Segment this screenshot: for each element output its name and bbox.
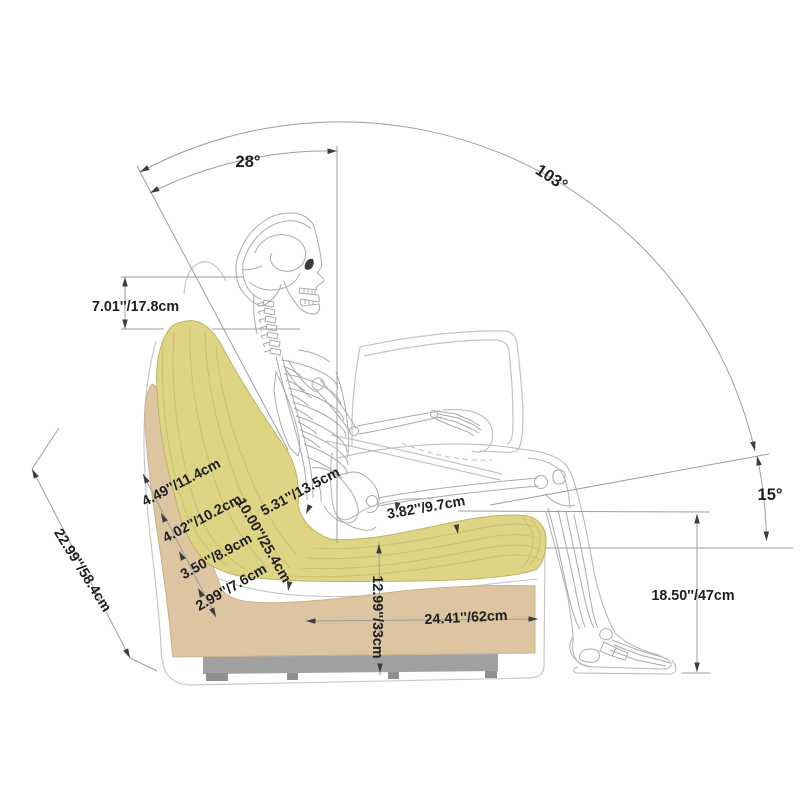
svg-text:18.50''/47cm: 18.50''/47cm (651, 588, 734, 604)
svg-text:15°: 15° (758, 486, 783, 504)
svg-text:28°: 28° (236, 153, 261, 171)
svg-text:12.99''/33cm: 12.99''/33cm (369, 575, 385, 658)
svg-text:7.01''/17.8cm: 7.01''/17.8cm (92, 299, 179, 315)
